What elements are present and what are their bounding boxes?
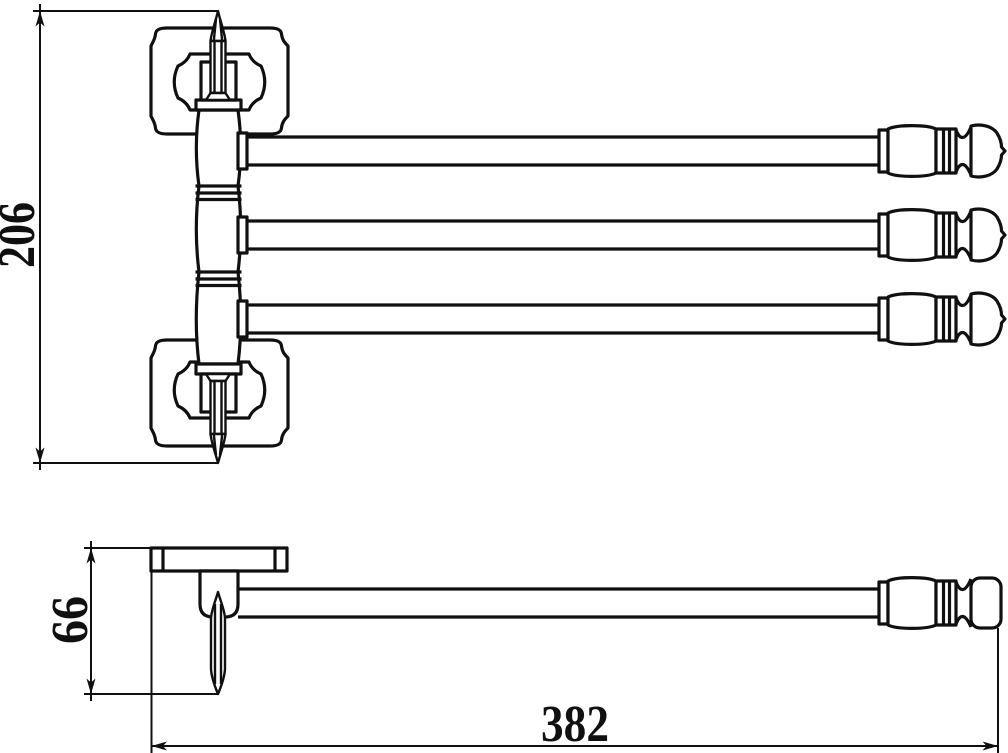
side-arm-end-barrel	[888, 578, 936, 629]
swing-arm-middle	[238, 209, 1005, 261]
swing-arm-bottom	[238, 293, 1005, 345]
side-arm-end-rings	[936, 581, 956, 625]
dimension-arm-length: 382	[152, 571, 999, 753]
side-arm-end-finial	[971, 578, 1001, 628]
front-view	[151, 11, 1005, 463]
dim-label-mount-depth: 66	[42, 596, 99, 644]
swing-arm-top	[238, 125, 1005, 177]
mounting-pin-bottom	[206, 374, 230, 463]
side-arm	[238, 578, 1001, 629]
swivel-column	[196, 110, 240, 364]
technical-drawing-canvas: 206 66 382	[0, 0, 1008, 753]
dim-label-overall-height: 206	[0, 202, 46, 268]
side-mounting-pin	[211, 592, 225, 694]
side-wall-plate	[151, 548, 287, 571]
mounting-pin-top	[206, 11, 230, 100]
side-view	[151, 548, 1001, 694]
dim-label-arm-length: 382	[541, 696, 609, 753]
